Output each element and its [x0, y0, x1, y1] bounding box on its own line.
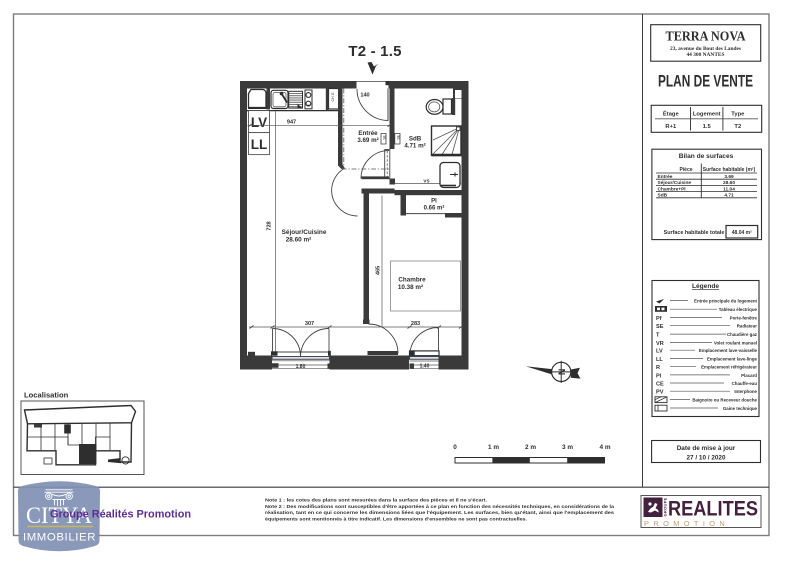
svg-text:Emplacement lave-linge: Emplacement lave-linge [707, 357, 758, 362]
svg-text:1.80: 1.80 [296, 364, 306, 370]
svg-text:4.71 m²: 4.71 m² [404, 143, 425, 150]
svg-text:REALITES: REALITES [668, 497, 758, 521]
svg-text:Pièce: Pièce [679, 167, 692, 173]
svg-text:Pf: Pf [656, 316, 662, 322]
svg-text:R: R [656, 365, 660, 371]
svg-text:SE: SE [383, 135, 387, 140]
svg-text:28.60 m²: 28.60 m² [286, 237, 312, 244]
svg-text:Radiateur: Radiateur [737, 324, 758, 329]
svg-text:2 m: 2 m [525, 444, 536, 451]
svg-text:PROMOTION: PROMOTION [644, 519, 729, 528]
svg-text:Bilan de surfaces: Bilan de surfaces [679, 153, 734, 160]
svg-text:Surface habitable totale: Surface habitable totale [664, 230, 725, 236]
svg-text:283: 283 [411, 321, 420, 327]
svg-text:10.38 m²: 10.38 m² [398, 284, 423, 291]
svg-text:4.71: 4.71 [724, 193, 734, 199]
svg-text:Baignoire ou Receveur douche: Baignoire ou Receveur douche [692, 398, 757, 403]
svg-text:307: 307 [305, 321, 314, 327]
svg-text:Pl: Pl [431, 199, 437, 205]
svg-text:140: 140 [360, 93, 369, 99]
svg-text:1.40: 1.40 [420, 364, 430, 370]
svg-text:Volet roulant manuel: Volet roulant manuel [714, 340, 757, 345]
svg-text:0.66 m²: 0.66 m² [424, 205, 445, 212]
svg-text:SE: SE [396, 134, 400, 139]
svg-text:Entrée: Entrée [658, 174, 673, 180]
svg-text:TERRA NOVA: TERRA NOVA [666, 29, 746, 44]
svg-text:IMMOBILIER: IMMOBILIER [23, 532, 96, 544]
svg-text:3 m: 3 m [562, 444, 573, 451]
svg-text:Emplacement lave-vaisselle: Emplacement lave-vaisselle [699, 348, 758, 353]
svg-text:Entrée: Entrée [358, 130, 378, 137]
svg-text:Pl: Pl [656, 373, 662, 379]
svg-text:Chambre: Chambre [398, 277, 426, 284]
svg-text:3.69 m²: 3.69 m² [357, 137, 378, 144]
svg-text:Séjour/Cuisine: Séjour/Cuisine [658, 180, 692, 186]
svg-text:Surface habitable (m²): Surface habitable (m²) [703, 167, 756, 173]
svg-text:VR: VR [656, 341, 664, 347]
svg-text:Porte-fenêtre: Porte-fenêtre [730, 316, 758, 321]
svg-text:T: T [656, 333, 660, 339]
svg-text:465: 465 [376, 266, 382, 275]
svg-text:Étage: Étage [663, 109, 680, 117]
svg-text:Logement: Logement [693, 111, 721, 117]
svg-text:équipements sont mentionnés à: équipements sont mentionnés à titre indi… [265, 516, 527, 521]
svg-text:11.04: 11.04 [723, 186, 735, 192]
svg-text:947: 947 [287, 120, 296, 126]
svg-text:Chaudière gaz: Chaudière gaz [727, 332, 758, 337]
svg-text:SdB: SdB [409, 136, 422, 143]
svg-text:Chambre+Pl: Chambre+Pl [658, 186, 686, 192]
svg-text:LV: LV [251, 115, 267, 130]
svg-text:GROUPE: GROUPE [663, 497, 668, 516]
svg-text:Note 1 : les cotes des plans s: Note 1 : les cotes des plans sont mesuré… [265, 498, 487, 503]
svg-text:PV: PV [656, 390, 664, 396]
svg-text:LV: LV [656, 349, 663, 355]
svg-text:0: 0 [453, 444, 457, 451]
svg-text:CE: CE [656, 382, 664, 388]
svg-text:PLAN DE VENTE: PLAN DE VENTE [658, 73, 753, 91]
svg-text:SdB: SdB [658, 193, 668, 199]
svg-text:LL: LL [656, 357, 663, 363]
svg-text:Interphone: Interphone [734, 389, 757, 394]
svg-text:réalisation, tant en ce qui co: réalisation, tant en ce qui concerne les… [265, 510, 615, 515]
svg-text:VS: VS [423, 179, 429, 184]
svg-text:Groupe Réalités Promotion: Groupe Réalités Promotion [50, 509, 191, 521]
svg-text:4 m: 4 m [599, 444, 610, 451]
svg-text:N: N [557, 369, 567, 376]
svg-text:LL: LL [251, 137, 268, 152]
svg-text:Tableau électrique: Tableau électrique [719, 307, 758, 312]
svg-text:R+1: R+1 [665, 124, 677, 130]
svg-text:Localisation: Localisation [24, 391, 69, 400]
svg-text:1 m: 1 m [488, 444, 499, 451]
svg-text:28.60: 28.60 [723, 180, 735, 186]
svg-text:48.04 m²: 48.04 m² [732, 230, 752, 236]
svg-text:728: 728 [267, 221, 273, 230]
svg-text:Légende: Légende [692, 283, 719, 290]
svg-text:Séjour/Cuisine: Séjour/Cuisine [282, 229, 327, 236]
svg-text:44 300 NANTES: 44 300 NANTES [686, 52, 724, 58]
svg-text:1.5: 1.5 [703, 124, 712, 130]
svg-text:Gaine technique: Gaine technique [723, 406, 758, 411]
svg-text:Entrée principale du logement: Entrée principale du logement [694, 298, 757, 303]
svg-text:Note 2 : Des modifications son: Note 2 : Des modifications sont suscepti… [265, 504, 615, 509]
svg-text:3.69: 3.69 [724, 174, 734, 180]
svg-text:Chauffe-eau: Chauffe-eau [732, 381, 758, 386]
svg-text:SE: SE [656, 324, 664, 330]
svg-text:Emplacement réfrigérateur: Emplacement réfrigérateur [701, 365, 757, 370]
svg-text:Date de mise à jour: Date de mise à jour [677, 445, 736, 452]
svg-text:Placard: Placard [741, 373, 757, 378]
svg-text:CH.G: CH.G [331, 92, 335, 101]
svg-text:T2: T2 [734, 124, 741, 130]
svg-text:T2 - 1.5: T2 - 1.5 [348, 43, 401, 60]
svg-text:Type: Type [731, 111, 745, 117]
svg-text:27 / 10 / 2020: 27 / 10 / 2020 [686, 455, 726, 462]
